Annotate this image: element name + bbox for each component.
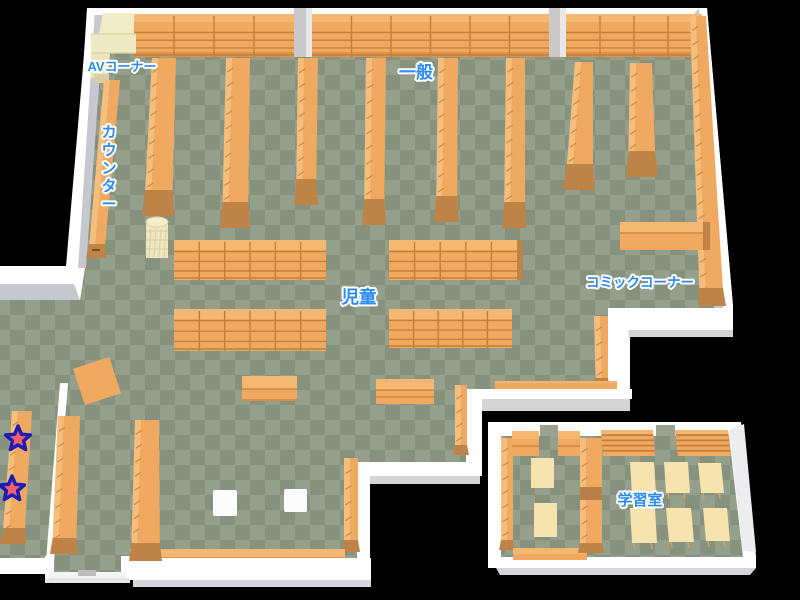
svg-text:児童: 児童 [341,287,377,307]
svg-text:タ: タ [101,178,116,195]
svg-text:一般: 一般 [399,62,433,82]
svg-text:ウ: ウ [101,142,116,159]
svg-text:カ: カ [101,124,116,141]
svg-text:ー: ー [101,196,116,213]
svg-text:学習室: 学習室 [617,491,662,509]
svg-text:ン: ン [101,160,116,177]
svg-text:AVコーナー: AVコーナー [87,59,156,74]
svg-text:コミックコーナー: コミックコーナー [586,275,694,290]
